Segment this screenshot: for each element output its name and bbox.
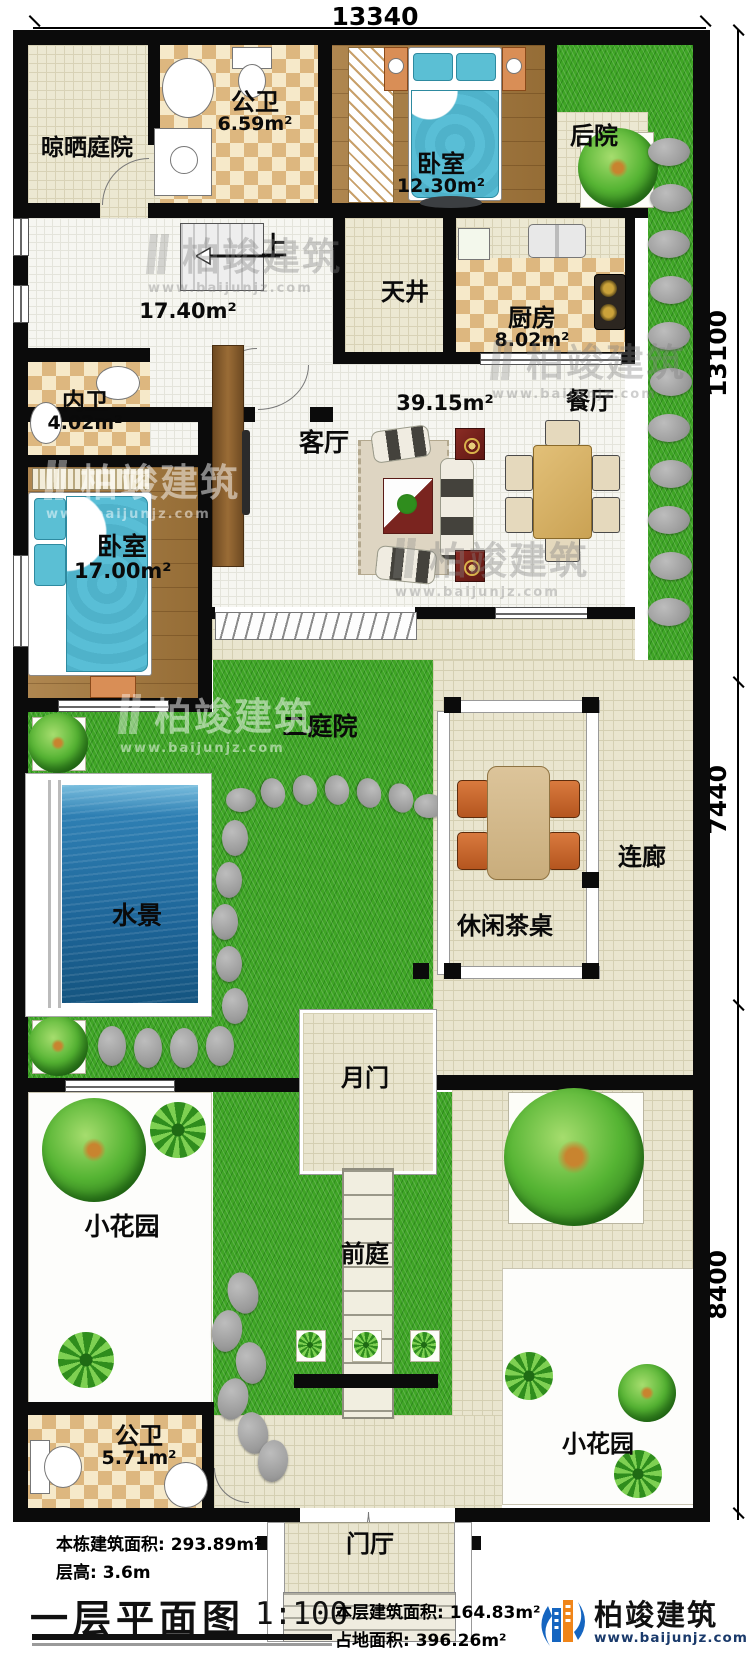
burner-icon	[600, 304, 617, 321]
garden-bench	[294, 1374, 438, 1388]
stat-building-area: 本栋建筑面积: 293.89m²	[56, 1530, 261, 1555]
dining-chair	[592, 497, 620, 533]
title-underline	[32, 1634, 332, 1640]
room-label-moon-gate: 月门	[323, 1066, 407, 1091]
pavilion-wall-right	[586, 711, 599, 970]
room-label-garden-right: 小花园	[546, 1432, 650, 1457]
pool-lane-line	[48, 780, 51, 1008]
stepping-stone	[222, 820, 248, 856]
rug-hatch	[32, 468, 150, 490]
tv-console-icon	[420, 196, 482, 208]
stat-floor-height: 层高: 3.6m	[56, 1558, 151, 1583]
wall-outer-top	[13, 30, 710, 45]
company-logo: 柏竣建筑 www.baijunjz.com	[538, 1592, 738, 1654]
double-sink-icon	[528, 224, 586, 258]
dim-tick	[699, 15, 711, 27]
tree-icon	[28, 713, 88, 773]
pavilion-post	[582, 963, 599, 979]
wall-house-front-a	[198, 607, 215, 619]
floor-plan-canvas: 13340 13100 7440 8400	[0, 0, 750, 1661]
tea-table	[487, 766, 550, 880]
nightstand-icon	[90, 676, 136, 698]
tree-icon	[618, 1364, 676, 1422]
stat-floor-area: 本层建筑面积: 164.83m²	[335, 1598, 540, 1623]
shower-head-icon	[170, 146, 198, 174]
wall-row1-bottom-b	[148, 203, 648, 218]
porch-jamb-right	[454, 1522, 472, 1642]
lamp-icon	[388, 58, 404, 74]
room-label-drying-yard: 晾晒庭院	[26, 136, 148, 160]
pavilion-post	[444, 963, 461, 979]
water-feature-pool	[62, 785, 198, 1003]
tea-chair	[547, 780, 580, 818]
dining-chair	[545, 536, 580, 562]
wall-innerbath-top	[28, 348, 150, 362]
stepping-stone	[648, 598, 690, 626]
stairhall-window-2	[13, 285, 29, 323]
room-label-front-yard: 前庭	[323, 1242, 407, 1267]
pavilion-post	[444, 697, 461, 713]
room-label-entry-hall: 门厅	[328, 1532, 412, 1557]
lamp-icon	[506, 58, 522, 74]
big-tree-icon	[504, 1088, 644, 1226]
armchair	[374, 545, 437, 585]
planter-palm-icon	[412, 1332, 436, 1358]
stepping-stone	[648, 506, 690, 534]
room-label-patio: 天井	[364, 280, 446, 305]
side-table	[455, 428, 485, 460]
planter-palm-icon	[354, 1332, 378, 1358]
room-label-tea-table: 休闲茶桌	[443, 914, 567, 939]
stepping-stone	[226, 788, 256, 812]
wall-house-front-b	[415, 607, 495, 619]
stepping-stone	[206, 1026, 234, 1066]
table-plant-icon	[397, 494, 417, 514]
bed-pillow	[413, 53, 453, 81]
wall-row1-bottom-a	[28, 203, 100, 218]
company-logo-name: 柏竣建筑	[594, 1592, 718, 1634]
moon-gate-platform	[300, 1010, 436, 1174]
bed-pillow	[34, 544, 66, 586]
bedroom2-window-left	[13, 555, 29, 647]
pavilion-post	[582, 872, 599, 888]
wall-courtyard-front-c	[430, 1075, 693, 1090]
bed-blanket	[66, 496, 148, 672]
dimension-line-right	[737, 30, 739, 1520]
garden-left-window	[65, 1080, 175, 1092]
room-label-public-bath-2: 公卫 5.71m²	[96, 1424, 182, 1469]
palm-icon	[150, 1102, 206, 1158]
bed-pillow	[34, 498, 66, 540]
wall-stairhall-bottom-b	[310, 407, 333, 422]
toilet-bowl-icon	[44, 1446, 82, 1488]
label-living-area: 39.15m²	[395, 392, 495, 414]
fridge-icon	[458, 228, 490, 260]
wall-bath2-top	[15, 1402, 214, 1415]
wall-innerbath-bottom	[15, 455, 210, 467]
stepping-stone	[222, 988, 248, 1024]
wall-bath1-right	[318, 45, 332, 203]
wall-bedroom2-right	[198, 422, 212, 712]
stepping-stone	[648, 414, 690, 442]
stepping-stone	[650, 184, 692, 212]
room-label-corridor: 连廊	[600, 845, 684, 870]
room-label-inner-bath: 内卫 4.02m²	[42, 390, 128, 434]
pavilion-post	[413, 963, 429, 979]
wall-patio-left	[333, 218, 345, 364]
label-stairs-up: 上	[254, 234, 294, 261]
stepping-stone	[170, 1028, 198, 1068]
stepping-stone	[648, 230, 690, 258]
dining-chair	[505, 455, 533, 491]
room-label-living: 客厅	[282, 430, 366, 456]
dining-table	[533, 445, 592, 539]
wall-courtyard-front-b	[210, 1078, 300, 1092]
tree-icon	[28, 1016, 88, 1076]
wall-outer-right	[693, 30, 710, 1522]
room-label-dining: 餐厅	[548, 389, 632, 414]
tree-icon	[42, 1098, 146, 1202]
title-underline-shadow	[32, 1643, 332, 1646]
folding-door	[215, 612, 417, 640]
tea-chair	[457, 780, 490, 818]
stepping-stone	[216, 946, 242, 982]
dining-chair	[545, 420, 580, 446]
wall-outer-bottom-left	[13, 1508, 300, 1522]
room-label-water-feature: 水景	[95, 903, 179, 929]
bedroom2-window	[58, 700, 169, 712]
stepping-stone	[648, 138, 690, 166]
dining-chair	[592, 455, 620, 491]
palm-icon	[505, 1352, 553, 1400]
room-label-back-yard: 后院	[553, 124, 635, 149]
stepping-stone	[212, 904, 238, 940]
room-label-bedroom-1: 卧室 12.30m²	[396, 152, 486, 197]
label-stairhall-area: 17.40m²	[138, 300, 238, 322]
stat-land-area: 占地面积: 396.26m²	[335, 1626, 506, 1651]
room-label-public-bath-1: 公卫 6.59m²	[213, 90, 297, 135]
company-logo-icon	[538, 1592, 590, 1652]
kitchen-window	[480, 353, 622, 365]
stepping-stone	[650, 552, 692, 580]
tea-chair	[547, 832, 580, 870]
side-table	[455, 550, 485, 582]
wardrobe-strip	[212, 345, 244, 567]
dining-chair	[505, 497, 533, 533]
stepping-stone	[650, 460, 692, 488]
dim-tick	[28, 15, 40, 27]
stepping-stone	[650, 276, 692, 304]
living-front-window	[495, 607, 589, 619]
company-logo-url: www.baijunjz.com	[594, 1630, 748, 1646]
stepping-stone	[134, 1028, 162, 1068]
room-label-bedroom-2: 卧室 17.00m²	[74, 534, 170, 582]
planter-palm-icon	[298, 1332, 322, 1358]
sofa-main	[440, 458, 474, 560]
room-label-garden-left: 小花园	[70, 1214, 174, 1240]
stairhall-window-1	[13, 218, 29, 256]
grass-backyard	[557, 45, 693, 112]
dimension-line-top	[33, 27, 706, 29]
stepping-stone	[98, 1026, 126, 1066]
stepping-stone	[648, 322, 690, 350]
tea-chair	[457, 832, 490, 870]
sink-icon	[162, 58, 214, 118]
pavilion-post	[582, 697, 599, 713]
wall-kitchen-right	[625, 218, 635, 364]
pavilion-wall-bottom	[445, 966, 600, 979]
tv-bar-icon	[242, 430, 250, 515]
stepping-stone	[216, 862, 242, 898]
bed-pillow	[456, 53, 496, 81]
room-label-courtyard-2: 二庭院	[268, 714, 372, 740]
palm-icon	[58, 1332, 114, 1388]
stepping-stone	[650, 368, 692, 396]
burner-icon	[600, 280, 617, 297]
wall-outer-bottom-right	[455, 1508, 710, 1522]
pool-lane-line	[58, 780, 61, 1008]
pavilion-wall-top	[445, 700, 600, 713]
room-label-kitchen: 厨房 8.02m²	[490, 306, 574, 351]
wall-house-front-c	[587, 607, 635, 619]
